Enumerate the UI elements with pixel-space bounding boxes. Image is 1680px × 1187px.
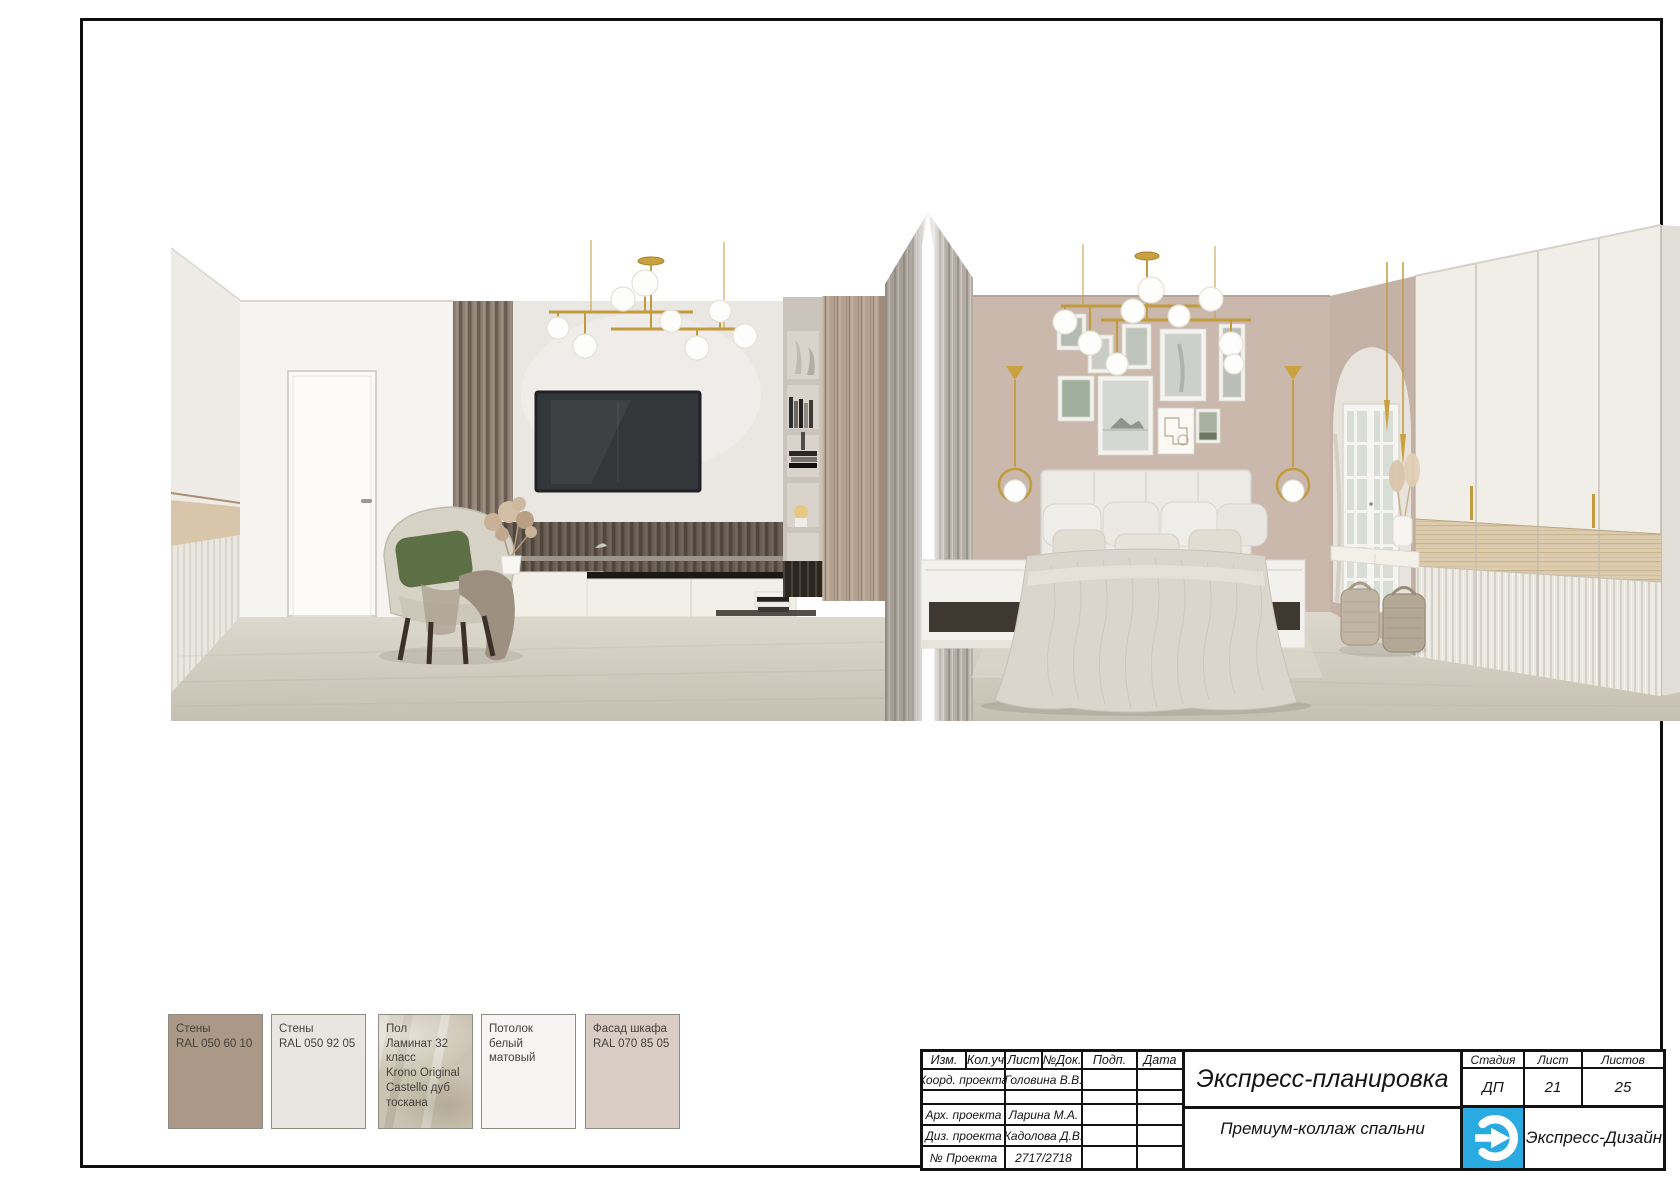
stamp-role: Коорд. проекта <box>923 1070 1006 1091</box>
line-art-frame <box>1158 408 1194 454</box>
company-name: Экспресс-Дизайн <box>1525 1108 1663 1168</box>
swatch-floor: Пол Ламинат 32 класс Krono Original Cast… <box>378 1014 473 1129</box>
stamp-name: 2717/2718 <box>1006 1147 1083 1168</box>
stamp-col-izm: Изм. <box>923 1052 967 1070</box>
drawing-sheet: Стены RAL 050 60 10 Стены RAL 050 92 05 … <box>0 0 1680 1187</box>
stamp-titles: Экспресс-планировка Премиум-коллаж спаль… <box>1185 1052 1463 1168</box>
stage-value: ДП <box>1463 1069 1523 1105</box>
swatch-label: Фасад шкафа <box>593 1022 672 1037</box>
gold-handle <box>1592 494 1595 528</box>
project-title: Экспресс-планировка <box>1185 1052 1460 1109</box>
swatch-spec: Ламинат 32 класс Krono Original Castello… <box>386 1037 465 1111</box>
stamp-name: Ларина М.А. <box>1006 1105 1083 1126</box>
sheet-total-value: 25 <box>1583 1069 1663 1105</box>
express-design-logo-icon <box>1463 1108 1523 1168</box>
title-block: Изм. Кол.уч Лист №Док. Подп. Дата Коорд.… <box>920 1049 1666 1171</box>
left-wall <box>171 248 240 693</box>
stamp-signature-grid: Изм. Кол.уч Лист №Док. Подп. Дата Коорд.… <box>923 1052 1185 1168</box>
swatch-wardrobe-front: Фасад шкафа RAL 070 85 05 <box>585 1014 680 1129</box>
shelf-lamp <box>794 505 808 519</box>
stamp-col-data: Дата <box>1138 1052 1182 1070</box>
shelf-unit <box>783 297 823 597</box>
collage-renders <box>171 204 1680 721</box>
swatch-spec: белый матовый <box>489 1037 568 1066</box>
swatch-spec: RAL 070 85 05 <box>593 1037 672 1052</box>
swatch-label: Потолок <box>489 1022 568 1037</box>
company-logo <box>1463 1108 1525 1168</box>
stamp-name: Кадолова Д.В. <box>1006 1126 1083 1147</box>
swatch-label: Пол <box>386 1022 465 1037</box>
stamp-col-podp: Подп. <box>1083 1052 1138 1070</box>
door <box>288 371 376 616</box>
wood-cabinet <box>823 296 885 601</box>
swatch-spec: RAL 050 60 10 <box>176 1037 255 1052</box>
stage-label: Стадия <box>1463 1052 1523 1069</box>
sheet-number-label: Лист <box>1525 1052 1581 1069</box>
swatch-label: Стены <box>279 1022 358 1037</box>
stamp-role: № Проекта <box>923 1147 1006 1168</box>
stamp-right: Стадия ДП Лист 21 Листов 25 <box>1463 1052 1663 1168</box>
stamp-col-koluch: Кол.уч <box>967 1052 1006 1070</box>
stamp-col-list: Лист <box>1006 1052 1043 1070</box>
swatch-spec: RAL 050 92 05 <box>279 1037 358 1052</box>
stamp-role: Диз. проекта <box>923 1126 1006 1147</box>
floor-left <box>171 617 885 721</box>
render-tv-lounge <box>171 240 885 721</box>
sheet-number-value: 21 <box>1525 1069 1581 1105</box>
wardrobe <box>1415 225 1680 696</box>
swatch-ceiling: Потолок белый матовый <box>481 1014 576 1129</box>
sheet-title: Премиум-коллаж спальни <box>1185 1109 1460 1168</box>
swatch-walls-dark: Стены RAL 050 60 10 <box>168 1014 263 1129</box>
render-bedroom <box>921 225 1680 721</box>
door-handle <box>361 499 372 503</box>
stamp-name: Головина В.В. <box>1006 1070 1083 1091</box>
swatch-label: Стены <box>176 1022 255 1037</box>
wardrobe-side <box>1661 225 1680 696</box>
slat-panel <box>453 301 513 516</box>
tv <box>536 392 700 491</box>
stamp-role: Арх. проекта <box>923 1105 1006 1126</box>
stamp-col-dok: №Док. <box>1043 1052 1083 1070</box>
stamp-name <box>1006 1091 1083 1105</box>
swatch-walls-light: Стены RAL 050 92 05 <box>271 1014 366 1129</box>
gold-handle <box>1470 486 1473 520</box>
stamp-role <box>923 1091 1006 1105</box>
sheet-frame: Стены RAL 050 60 10 Стены RAL 050 92 05 … <box>80 18 1663 1168</box>
sheet-total-label: Листов <box>1583 1052 1663 1069</box>
